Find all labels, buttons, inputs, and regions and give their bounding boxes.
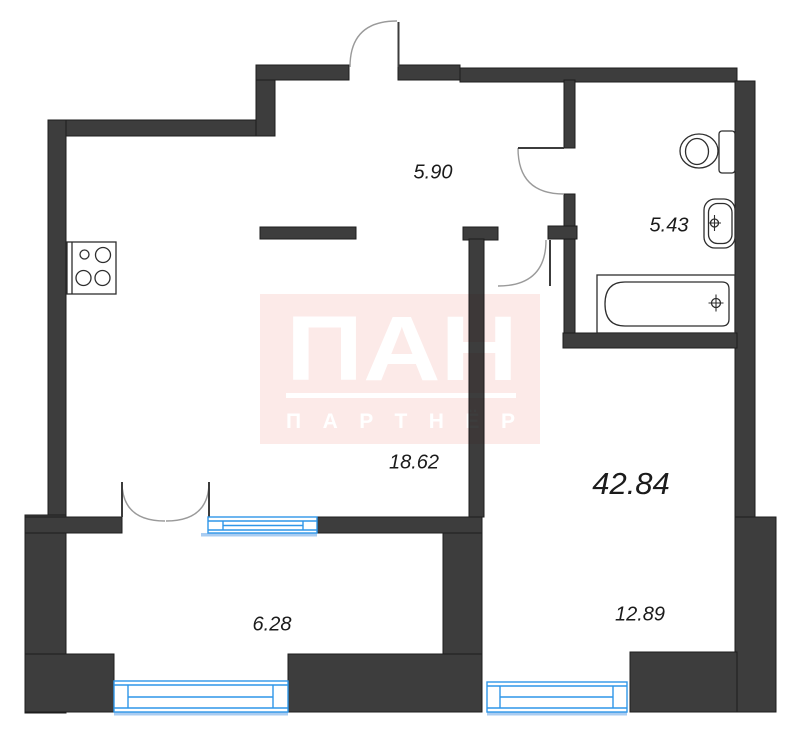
area-label-bathroom: 5.43 bbox=[650, 215, 689, 238]
area-label-total: 42.84 bbox=[592, 466, 670, 502]
area-label-hallway: 5.90 bbox=[414, 162, 453, 185]
floor-plan-page: ПАН ПАРТНЁР 5.90 5.43 18.62 42.84 12.89 … bbox=[0, 0, 800, 739]
area-label-balcony: 6.28 bbox=[253, 614, 292, 637]
area-label-kitchen-living: 18.62 bbox=[389, 452, 439, 475]
watermark-underline bbox=[286, 393, 516, 398]
watermark-logo-text: ПАН bbox=[286, 298, 518, 400]
area-label-room: 12.89 bbox=[615, 604, 665, 627]
watermark: ПАН ПАРТНЁР bbox=[0, 0, 800, 739]
